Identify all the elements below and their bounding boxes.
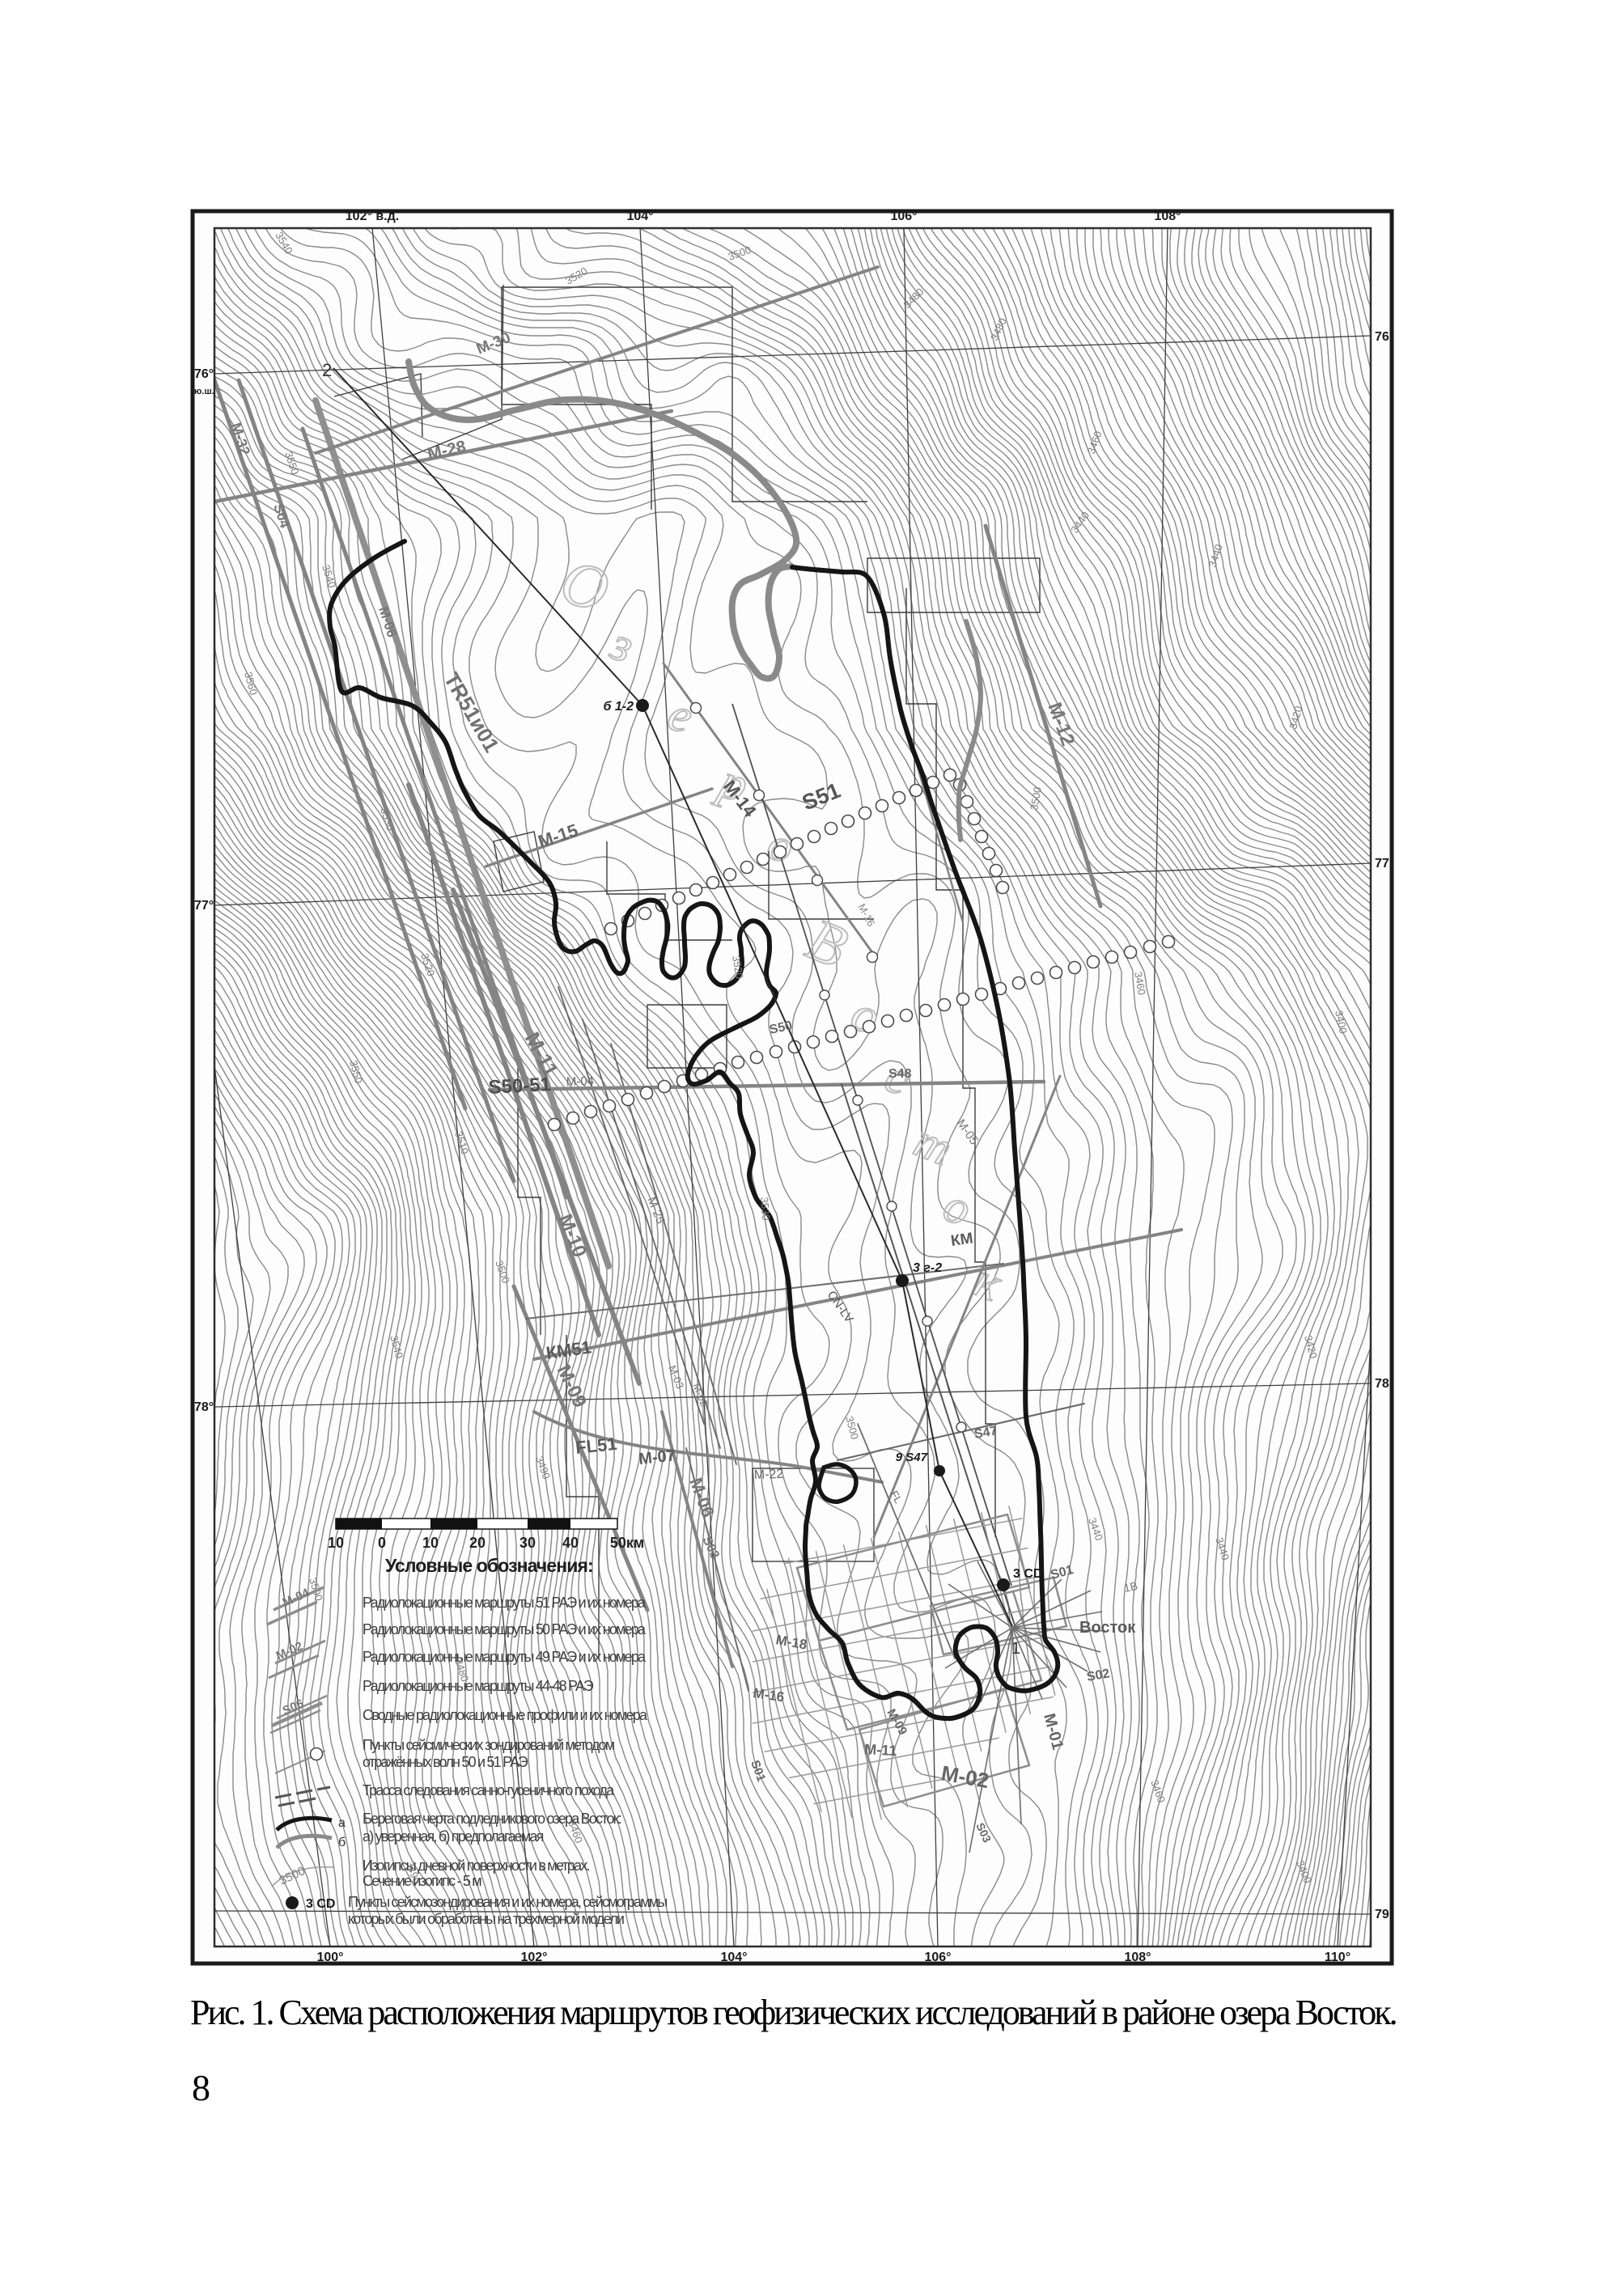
- svg-text:30: 30: [519, 1535, 536, 1551]
- svg-text:9 S47: 9 S47: [896, 1451, 928, 1464]
- svg-text:б: б: [338, 1836, 346, 1849]
- svg-text:0: 0: [378, 1535, 386, 1551]
- svg-text:78°: 78°: [1375, 1377, 1394, 1391]
- svg-text:79°: 79°: [1375, 1908, 1394, 1921]
- svg-text:77°: 77°: [194, 899, 214, 913]
- svg-text:S50-51: S50-51: [488, 1074, 552, 1099]
- svg-text:10: 10: [328, 1535, 344, 1551]
- svg-text:ю.ш.: ю.ш.: [194, 387, 214, 396]
- svg-text:Условные обозначения:: Условные обозначения:: [385, 1555, 593, 1576]
- svg-text:Радиолокационные маршруты 44-4: Радиолокационные маршруты 44-48 РАЭ: [363, 1678, 594, 1694]
- svg-text:FL51: FL51: [575, 1434, 618, 1458]
- svg-text:8: 8: [192, 2067, 210, 2108]
- svg-text:3 CD: 3 CD: [306, 1897, 335, 1911]
- svg-text:Пункты сейсмозондирования и их: Пункты сейсмозондирования и их номера, с…: [348, 1894, 667, 1910]
- svg-text:100°: 100°: [316, 1951, 343, 1964]
- svg-text:10: 10: [422, 1535, 439, 1551]
- svg-text:78°: 78°: [194, 1400, 214, 1414]
- svg-text:M-04: M-04: [566, 1074, 595, 1089]
- svg-text:76°: 76°: [194, 367, 214, 381]
- svg-text:которых были обработаны на тре: которых были обработаны на трехмерной мо…: [348, 1911, 624, 1927]
- svg-text:Радиолокационные маршруты 51 Р: Радиолокационные маршруты 51 РАЭ и их но…: [363, 1595, 647, 1611]
- svg-text:Радиолокационные маршруты 49 Р: Радиолокационные маршруты 49 РАЭ и их но…: [363, 1649, 647, 1665]
- svg-text:104°: 104°: [626, 210, 653, 223]
- svg-text:Рис. 1. Схема расположения мар: Рис. 1. Схема расположения маршрутов гео…: [190, 1993, 1397, 2032]
- svg-text:108°: 108°: [1154, 210, 1181, 223]
- svg-text:104°: 104°: [720, 1951, 747, 1964]
- svg-text:Сводные радиолокационные профи: Сводные радиолокационные профили и их но…: [363, 1707, 648, 1723]
- svg-text:106°: 106°: [890, 210, 917, 223]
- svg-text:106°: 106°: [924, 1951, 951, 1964]
- svg-text:а) уверенная, б) предполагаема: а) уверенная, б) предполагаемая: [363, 1828, 544, 1845]
- svg-text:Изогипсы дневной поверхности в: Изогипсы дневной поверхности в метрах.: [363, 1858, 590, 1874]
- svg-text:б 1-2: б 1-2: [604, 700, 634, 714]
- svg-text:Трасса следования санно-гусени: Трасса следования санно-гусеничного похо…: [363, 1782, 615, 1798]
- svg-text:Сечение изогипс - 5 м: Сечение изогипс - 5 м: [363, 1873, 481, 1889]
- svg-text:76°: 76°: [1375, 330, 1394, 344]
- svg-text:Радиолокационные маршруты 50 Р: Радиолокационные маршруты 50 РАЭ и их но…: [363, 1621, 647, 1637]
- svg-text:50км: 50км: [610, 1535, 644, 1551]
- svg-text:S48: S48: [888, 1067, 912, 1081]
- svg-text:110°: 110°: [1325, 1951, 1351, 1964]
- svg-text:Береговая черта подледникового: Береговая черта подледникового озера Вос…: [363, 1811, 621, 1827]
- svg-text:77°: 77°: [1375, 857, 1394, 871]
- svg-text:3530: 3530: [758, 1197, 772, 1221]
- svg-text:102°: 102°: [520, 1951, 547, 1964]
- svg-text:а: а: [338, 1816, 346, 1830]
- svg-text:Пункты сейсмических зондирован: Пункты сейсмических зондирований методом: [363, 1737, 615, 1753]
- svg-text:М-22: М-22: [754, 1468, 784, 1482]
- svg-text:20: 20: [469, 1535, 486, 1551]
- svg-text:отражённых волн 50 и 51 РАЭ: отражённых волн 50 и 51 РАЭ: [363, 1754, 528, 1770]
- svg-text:102° в.д.: 102° в.д.: [346, 210, 399, 223]
- svg-text:М-11: М-11: [864, 1741, 897, 1759]
- svg-text:108°: 108°: [1124, 1951, 1151, 1964]
- svg-text:Восток: Восток: [1079, 1619, 1136, 1637]
- svg-text:1: 1: [1011, 1640, 1020, 1658]
- svg-text:3 г-2: 3 г-2: [913, 1261, 942, 1275]
- svg-text:КМ: КМ: [950, 1230, 974, 1250]
- svg-text:3 CD: 3 CD: [1013, 1567, 1042, 1581]
- svg-text:2: 2: [322, 360, 332, 380]
- svg-text:40: 40: [562, 1535, 579, 1551]
